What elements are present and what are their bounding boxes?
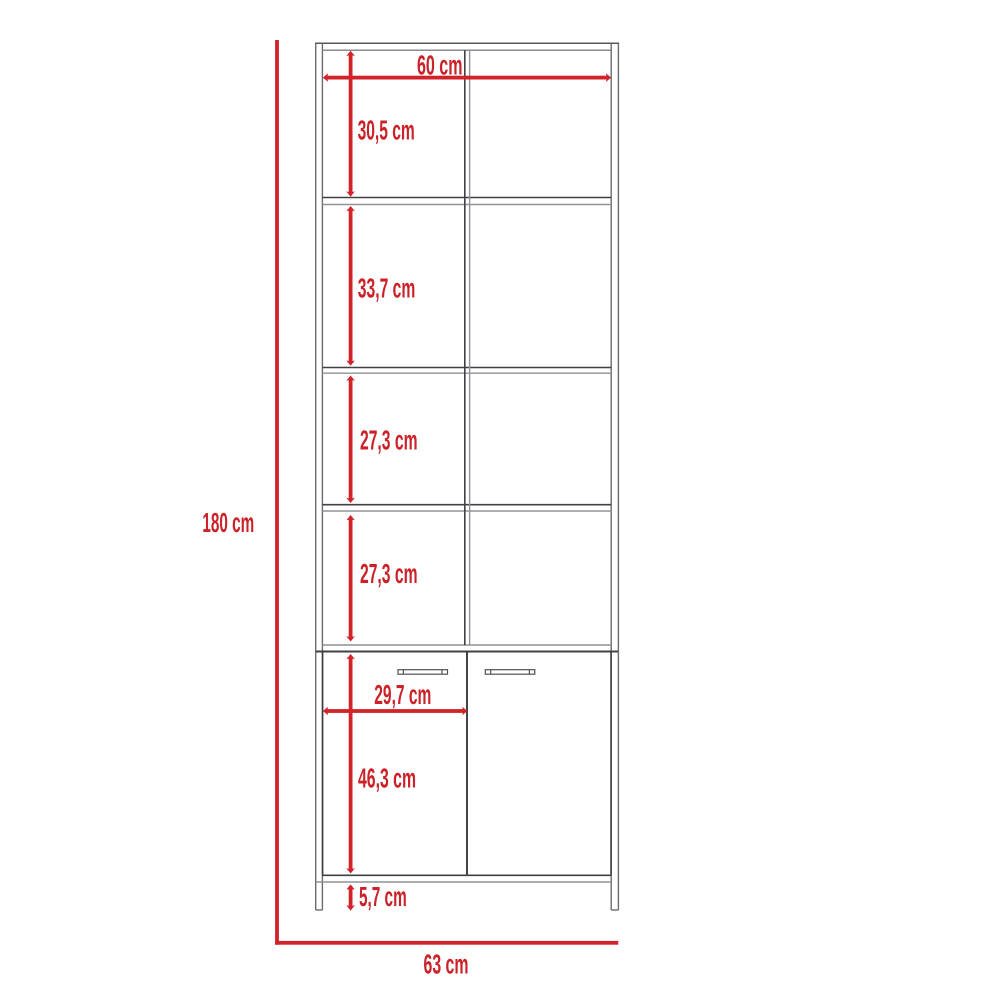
svg-text:27,3 cm: 27,3 cm [360, 558, 418, 589]
svg-text:60 cm: 60 cm [417, 49, 463, 80]
svg-text:46,3 cm: 46,3 cm [358, 763, 416, 794]
svg-text:33,7 cm: 33,7 cm [358, 272, 416, 303]
svg-text:63 cm: 63 cm [424, 949, 469, 980]
svg-text:27,3 cm: 27,3 cm [360, 425, 418, 456]
svg-text:29,7 cm: 29,7 cm [374, 679, 431, 710]
svg-text:5,7 cm: 5,7 cm [359, 881, 407, 912]
svg-text:30,5 cm: 30,5 cm [358, 115, 415, 146]
svg-text:180 cm: 180 cm [202, 507, 254, 538]
